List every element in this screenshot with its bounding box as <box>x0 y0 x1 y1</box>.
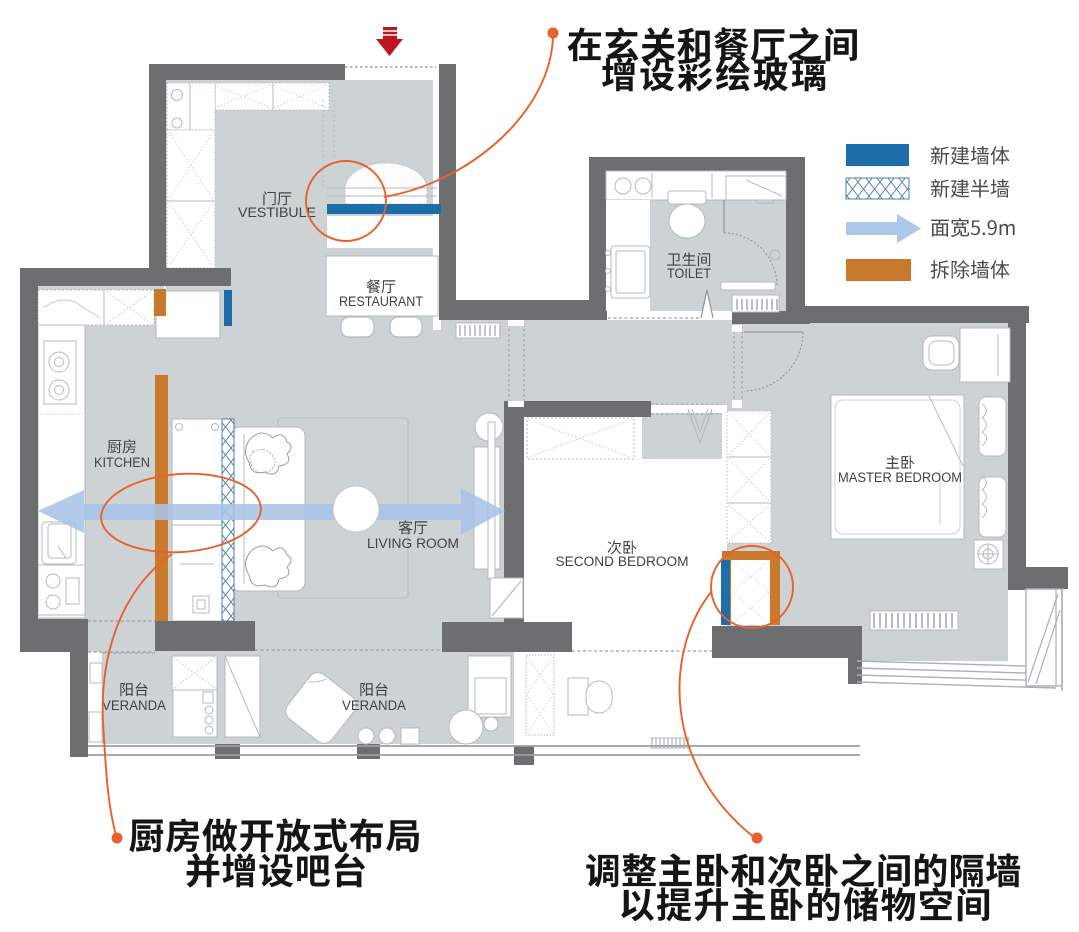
svg-text:TOILET: TOILET <box>667 266 711 281</box>
svg-text:VERANDA: VERANDA <box>102 698 166 713</box>
svg-text:RESTAURANT: RESTAURANT <box>339 294 423 309</box>
svg-text:VERANDA: VERANDA <box>342 698 406 713</box>
svg-text:KITCHEN: KITCHEN <box>94 455 150 470</box>
svg-text:LIVING ROOM: LIVING ROOM <box>367 536 459 551</box>
svg-text:VESTIBULE: VESTIBULE <box>238 205 316 220</box>
svg-text:MASTER BEDROOM: MASTER BEDROOM <box>838 470 962 485</box>
svg-text:SECOND BEDROOM: SECOND BEDROOM <box>556 554 689 569</box>
